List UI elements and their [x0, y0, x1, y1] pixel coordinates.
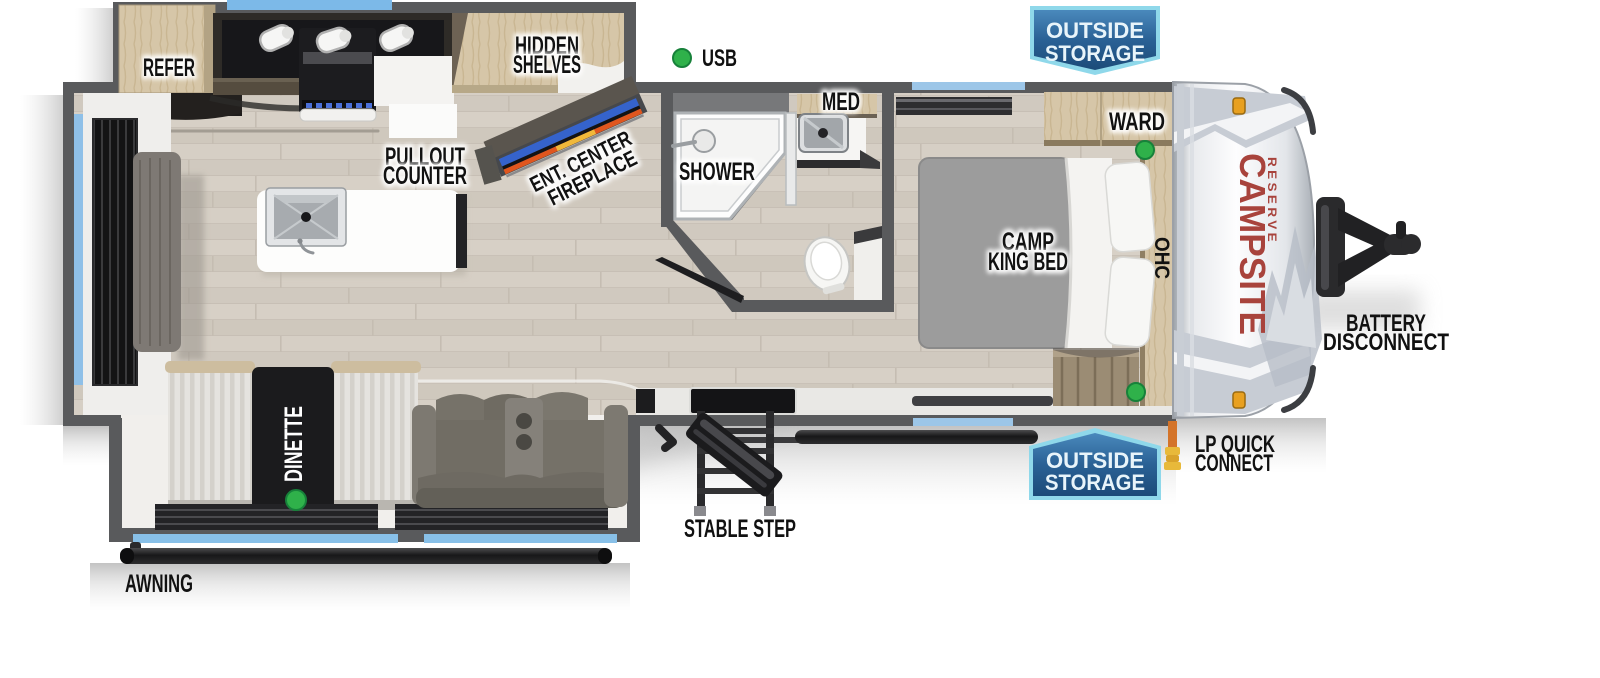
svg-text:WARD: WARD [1109, 108, 1165, 136]
svg-text:DISCONNECT: DISCONNECT [1323, 329, 1449, 356]
svg-text:CONNECT: CONNECT [1195, 450, 1273, 477]
svg-text:STORAGE: STORAGE [1045, 470, 1145, 495]
svg-text:STABLE STEP: STABLE STEP [684, 515, 796, 543]
svg-text:STORAGE: STORAGE [1045, 41, 1145, 66]
svg-text:OUTSIDE: OUTSIDE [1046, 18, 1144, 43]
svg-text:RESERVE: RESERVE [1265, 157, 1279, 245]
svg-text:OHC: OHC [1150, 237, 1173, 279]
svg-text:REFER: REFER [143, 54, 195, 82]
svg-text:KING BED: KING BED [988, 248, 1068, 276]
svg-text:DINETTE: DINETTE [280, 406, 308, 482]
svg-text:SHOWER: SHOWER [679, 158, 755, 186]
svg-text:USB: USB [702, 45, 737, 72]
svg-text:SHELVES: SHELVES [513, 51, 581, 79]
svg-text:MED: MED [822, 88, 860, 116]
svg-text:AWNING: AWNING [125, 570, 193, 598]
svg-text:COUNTER: COUNTER [383, 162, 467, 190]
